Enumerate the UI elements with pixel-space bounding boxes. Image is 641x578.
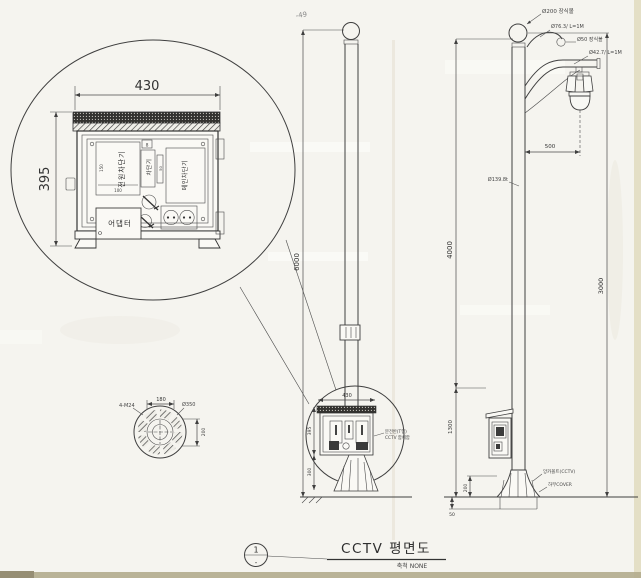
balloon-callout-line1: 분전반(T형) — [385, 428, 407, 435]
balloon-callout-line2: CCTV 함체함 — [385, 434, 410, 441]
breaker-left-sub2: 100 — [114, 188, 122, 193]
dim-500-label: 500 — [545, 144, 556, 150]
cabinet-front: 전원차단기 150 100 8 차단기 50 메인차단기 — [66, 112, 224, 248]
balloon-dim-300: 300 — [307, 468, 313, 477]
dim-200-label: 200 — [463, 484, 469, 493]
mini-panel-block — [356, 442, 368, 450]
arm-label: Ø42.7/ L=1M — [589, 49, 622, 56]
anchor-bolt-label: 앙카볼트(CCTV) — [543, 468, 575, 475]
dim-1300-label: 1300 — [448, 420, 454, 434]
bolt-count-label: 4-M24 — [119, 403, 135, 409]
dim-6000-label: 6000 — [293, 253, 301, 271]
scan-edge-bottom — [0, 572, 641, 578]
cabinet-roof-grid — [73, 112, 220, 123]
dim-50-label: 50 — [449, 512, 455, 518]
pole-joint-collar — [340, 325, 360, 340]
breaker-mid-sub: 50 — [158, 166, 163, 171]
breaker-mid-top-label: 8 — [146, 143, 149, 149]
balloon-dim-430: 430 — [342, 393, 352, 399]
dim-395-label: 395 — [38, 167, 53, 192]
balloon-dim-395: 395 — [307, 427, 313, 436]
drawing-title: CCTV 평면도 — [341, 541, 431, 557]
hook-label: Ø76.3/ L=1M — [551, 23, 584, 30]
mini-cabinet-roof — [317, 406, 376, 413]
dim-3000-label: 3000 — [597, 278, 605, 295]
diameter-label: Ø350 — [182, 401, 195, 408]
dim-4000-label: 4000 — [446, 241, 454, 259]
scale-label: 축척 NONE — [397, 562, 428, 570]
breaker-left-sub: 150 — [99, 164, 104, 172]
finial-label: Ø200 장식볼 — [542, 7, 574, 15]
adapter-label: 어댑터 — [108, 218, 132, 228]
mini-panel-block — [329, 441, 339, 450]
base-cover-label: 하부COVER — [548, 481, 572, 488]
reference-number: 1 — [253, 546, 258, 555]
scroll-label: Ø50 장식볼 — [577, 36, 603, 43]
pole-pipe-label: Ø139.8t — [488, 176, 508, 183]
breaker-mid-label: 차단기 — [145, 159, 153, 176]
scan-edge-right — [634, 0, 641, 578]
breaker-right-label: 메인차단기 — [181, 160, 189, 191]
cctv-pole-drawing: -49 430 395 — [0, 0, 641, 578]
dim-180-label: 180 — [156, 397, 166, 403]
dim-430-label: 430 — [135, 79, 160, 94]
breaker-left-label: 전원차단기 — [117, 150, 126, 187]
cabinet-roof-hatch — [73, 123, 220, 131]
dim-right-label: 200 — [201, 428, 207, 437]
corner-mark: -49 — [295, 10, 307, 20]
scan-edge-corner — [0, 571, 34, 578]
